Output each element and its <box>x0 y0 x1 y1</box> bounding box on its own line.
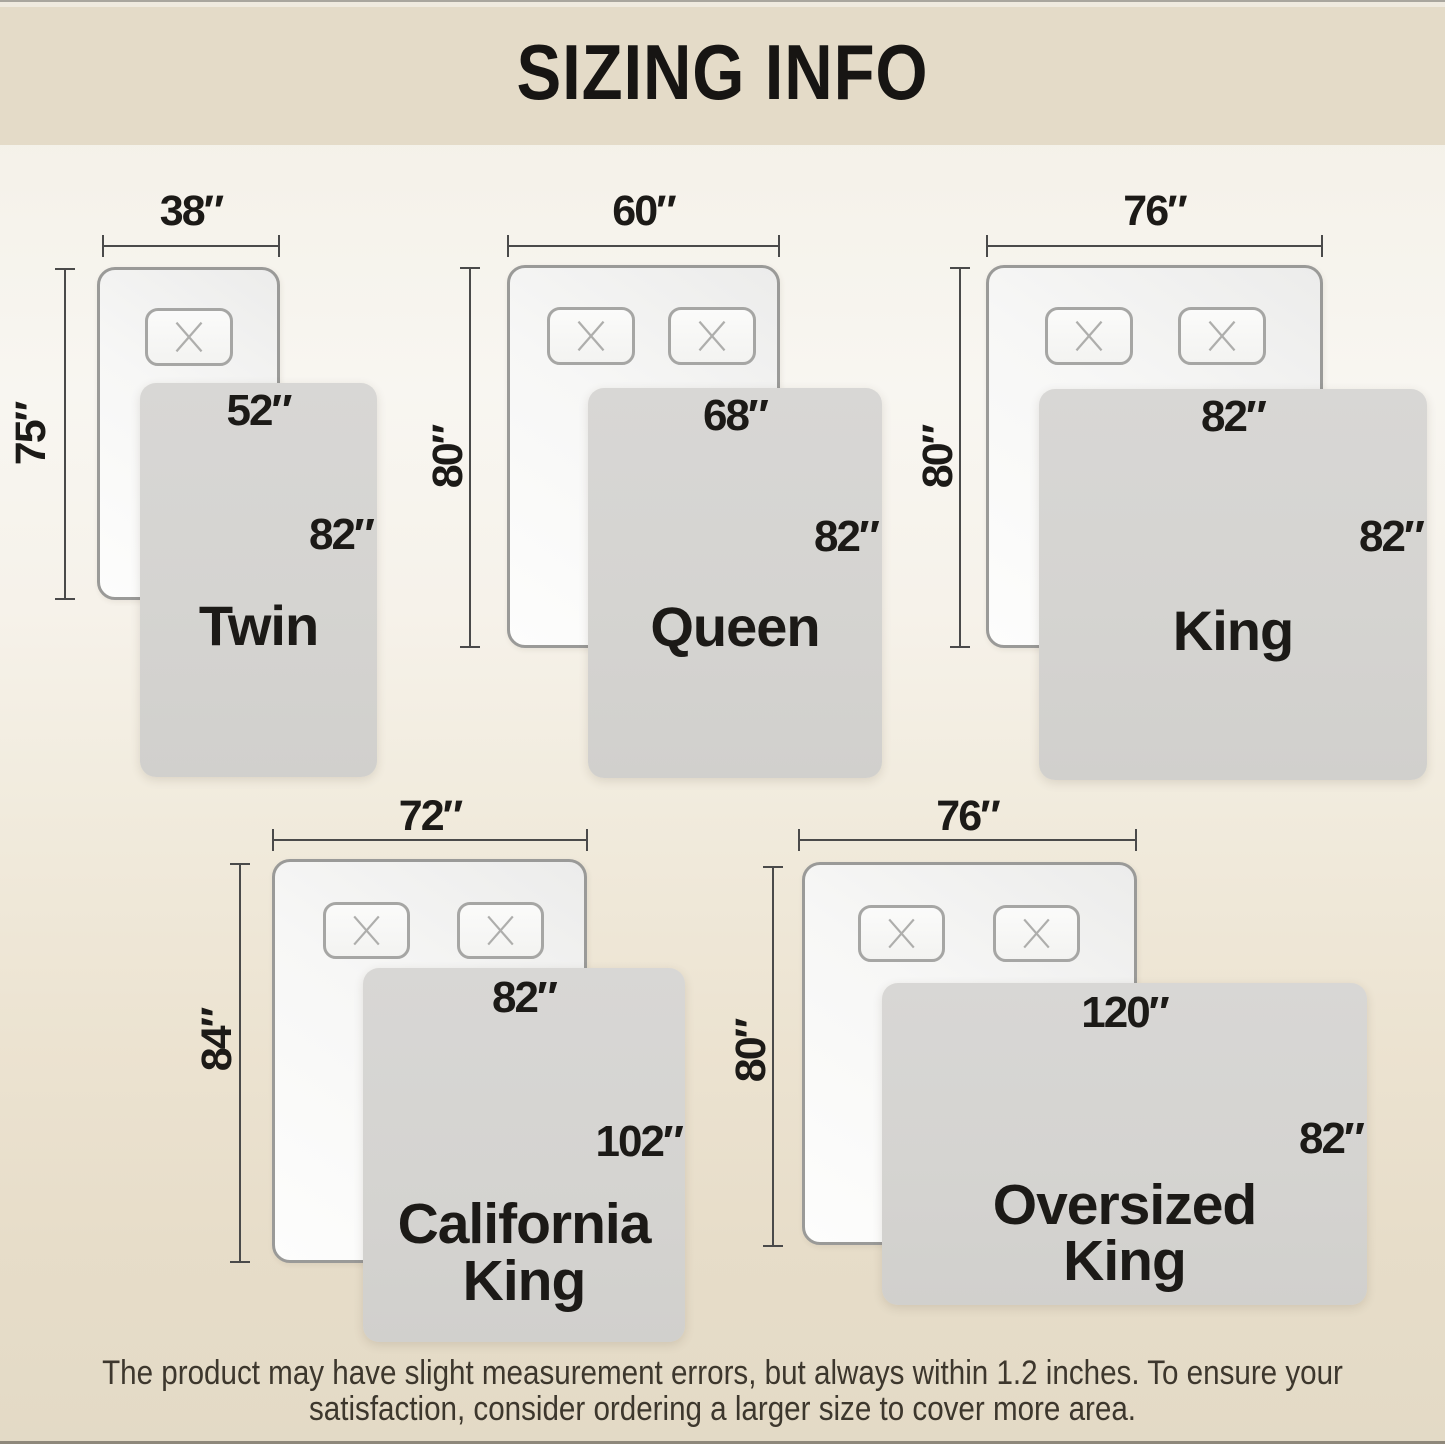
page-title: SIZING INFO <box>517 27 929 118</box>
twin-bed-length-label: 75″ <box>7 374 55 494</box>
pillow-x-icon <box>996 908 1077 959</box>
disclaimer-line2: satisfaction, consider ordering a larger… <box>94 1391 1351 1427</box>
queen-bed-width-label: 60″ <box>507 188 780 234</box>
oversized-king-blanket: 120″ 82″ Oversized King <box>882 983 1367 1305</box>
top-edge-highlight <box>0 2 1445 7</box>
twin-blanket-width-label: 52″ <box>140 387 377 435</box>
king-blanket-length-label: 82″ <box>1359 513 1423 561</box>
twin-size-name: Twin <box>140 597 377 655</box>
oversized-king-blanket-length-label: 82″ <box>1299 1115 1363 1163</box>
pillow-x-icon <box>148 311 230 363</box>
california-king-length-arrow <box>230 863 250 1263</box>
king-blanket-width-label: 82″ <box>1039 393 1427 441</box>
size-name-line2: King <box>363 1253 685 1310</box>
pillow <box>1045 307 1133 365</box>
pillow-x-icon <box>326 905 407 956</box>
california-king-width-arrow <box>272 829 588 851</box>
queen-size-name: Queen <box>588 598 882 656</box>
pillow <box>858 905 945 962</box>
pillow <box>145 308 233 366</box>
disclaimer-note: The product may have slight measurement … <box>0 1355 1445 1427</box>
pillow <box>457 902 544 959</box>
california-king-blanket-width-label: 82″ <box>363 974 685 1022</box>
disclaimer-line1: The product may have slight measurement … <box>94 1355 1351 1391</box>
pillow <box>668 307 756 365</box>
king-blanket: 82″ 82″ King <box>1039 389 1427 780</box>
oversized-king-width-arrow <box>798 829 1137 851</box>
pillow-x-icon <box>861 908 942 959</box>
size-name-line2: King <box>882 1233 1367 1289</box>
queen-blanket-width-label: 68″ <box>588 392 882 440</box>
california-king-size-name: California King <box>363 1196 685 1310</box>
queen-width-arrow <box>507 235 780 257</box>
queen-length-arrow <box>460 267 480 648</box>
pillow-x-icon <box>671 310 753 362</box>
oversized-king-size-name: Oversized King <box>882 1177 1367 1289</box>
pillow <box>323 902 410 959</box>
queen-blanket: 68″ 82″ Queen <box>588 388 882 778</box>
pillow-x-icon <box>550 310 632 362</box>
pillow-x-icon <box>1181 310 1263 362</box>
twin-length-arrow <box>55 268 75 600</box>
twin-blanket-length-label: 82″ <box>309 511 373 559</box>
pillow-x-icon <box>1048 310 1130 362</box>
header-banner: SIZING INFO <box>0 0 1445 145</box>
king-bed-width-label: 76″ <box>986 188 1323 234</box>
size-name-line1: California <box>363 1196 685 1253</box>
pillow-x-icon <box>460 905 541 956</box>
oversized-king-length-arrow <box>763 866 783 1247</box>
california-king-blanket: 82″ 102″ California King <box>363 968 685 1342</box>
king-width-arrow <box>986 235 1323 257</box>
pillow <box>1178 307 1266 365</box>
pillow <box>547 307 635 365</box>
queen-blanket-length-label: 82″ <box>814 513 878 561</box>
twin-blanket: 52″ 82″ Twin <box>140 383 377 777</box>
oversized-king-blanket-width-label: 120″ <box>882 989 1367 1037</box>
twin-bed-width-label: 38″ <box>102 188 280 234</box>
pillow <box>993 905 1080 962</box>
king-size-name: King <box>1039 602 1427 660</box>
sizing-info-infographic: SIZING INFO 38″ 75″ 52″ 82″ Twin 60″ 80″ <box>0 0 1445 1444</box>
california-king-blanket-length-label: 102″ <box>596 1118 683 1166</box>
twin-width-arrow <box>102 235 280 257</box>
king-length-arrow <box>950 267 970 648</box>
size-name-line1: Oversized <box>882 1177 1367 1233</box>
